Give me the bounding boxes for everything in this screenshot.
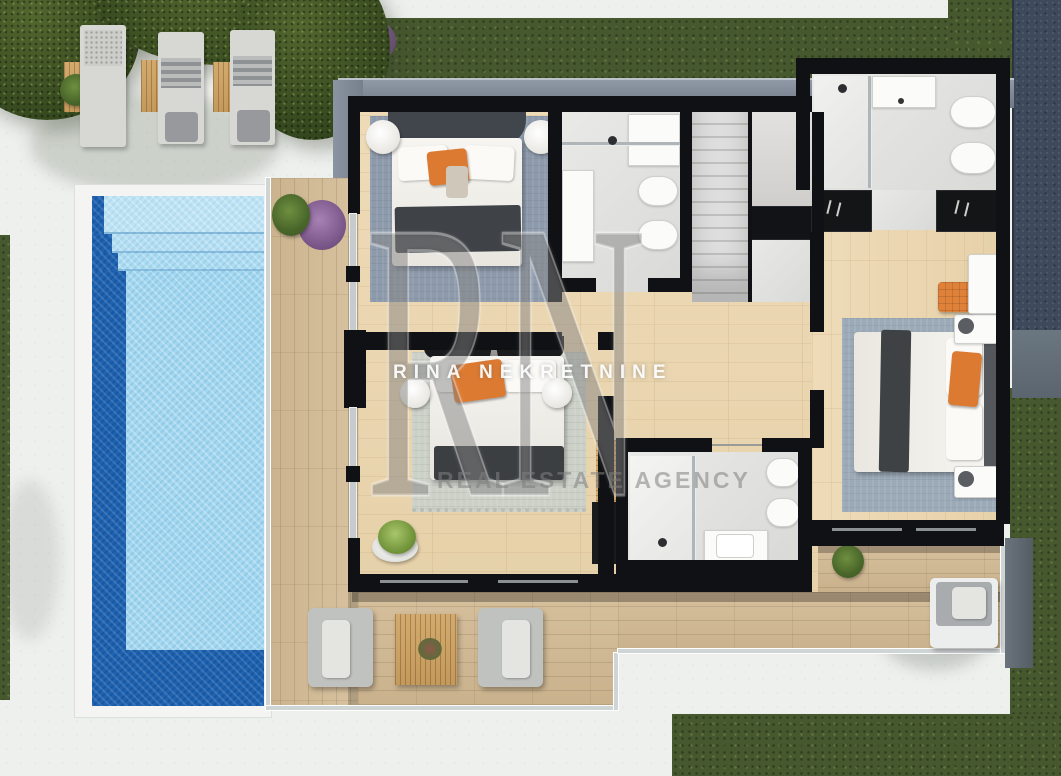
concrete-pad-right xyxy=(1012,330,1061,398)
hall-tile-lower-landing xyxy=(748,240,812,302)
pool-step-shelf xyxy=(104,196,264,234)
bathroom2-vanity xyxy=(872,76,936,108)
shower-glass xyxy=(868,76,871,188)
wall-bath3-top xyxy=(628,438,712,452)
pool-step-shelf xyxy=(112,234,264,253)
glass-railing xyxy=(266,706,618,710)
pool-deep-edge-step xyxy=(92,196,104,234)
glass-door-slit xyxy=(916,528,976,531)
lounger-towel xyxy=(233,56,272,86)
grass-top-right xyxy=(948,0,1018,44)
grass-bottom-right xyxy=(672,714,1061,776)
table-centerpiece xyxy=(418,638,442,660)
deck-plant-pot xyxy=(272,194,310,236)
wall-bottom-right-doors xyxy=(812,520,1004,546)
wall-hall-bedroom3-lower xyxy=(810,390,824,448)
wall-bath1-bottom xyxy=(648,278,680,292)
glass-railing xyxy=(618,649,1005,653)
shower-head xyxy=(838,84,847,93)
vanity-sink xyxy=(716,534,754,558)
lounger-cushion xyxy=(165,112,198,142)
grass-strip-left-edge xyxy=(0,235,10,700)
staircase xyxy=(692,112,748,302)
toilet xyxy=(638,176,678,206)
glass-door-slit xyxy=(832,528,902,531)
wall-bath3-right xyxy=(798,438,812,564)
watermark-agency-tagline: REAL ESTATE AGENCY xyxy=(437,467,751,494)
wall-left-upper xyxy=(348,112,360,214)
wall-top-main xyxy=(348,96,812,112)
lounger-cushion xyxy=(237,110,270,142)
bedroom3-entry-tile xyxy=(870,190,936,230)
bed3-dark-blanket xyxy=(879,330,911,473)
hall-storage-unit xyxy=(750,206,812,240)
nightstand-lamp xyxy=(958,471,974,487)
nightstand-lamp xyxy=(958,318,974,334)
armchair-cushion xyxy=(322,620,350,678)
toilet xyxy=(766,458,800,487)
bidet xyxy=(950,142,996,174)
lounger-head-cushion xyxy=(84,30,122,66)
floorplan-scene: RN RINA NEKRETNINE REAL ESTATE AGENCY xyxy=(0,0,1061,776)
terrace-side-wall xyxy=(1005,538,1033,668)
vanity-faucet xyxy=(898,98,904,104)
bed3-orange-pillow xyxy=(948,351,983,407)
bed3-pillow xyxy=(946,404,982,460)
wall-landing-right xyxy=(812,112,824,232)
side-table xyxy=(213,62,230,112)
pool-step-shelf xyxy=(118,253,264,271)
pool-deep-edge-left xyxy=(92,271,126,654)
house-shadow-on-deck xyxy=(352,592,1005,602)
wall-hall-bedroom3-upper xyxy=(810,232,824,332)
shower-fixture xyxy=(658,538,667,547)
toilet xyxy=(950,96,996,128)
armchair-cushion xyxy=(502,620,530,678)
glass-railing xyxy=(614,653,618,710)
roof-band-right xyxy=(1012,0,1061,335)
lounge-chair-pillow xyxy=(952,587,986,619)
deck-plant-pot xyxy=(832,545,864,578)
pool-deep-edge-step xyxy=(92,234,112,253)
wall-bottom-mid-slab xyxy=(616,560,812,592)
wall-top-bath2 xyxy=(796,58,1008,74)
bidet xyxy=(766,498,800,527)
pool-deep-edge-bottom xyxy=(92,650,264,706)
watermark-agency-name: RINA NEKRETNINE xyxy=(393,362,673,384)
lounger-towel xyxy=(161,58,201,88)
wall-outer-right xyxy=(996,58,1010,524)
door-open-line xyxy=(712,444,762,446)
wall-bath2-left xyxy=(796,58,810,190)
stair-rail xyxy=(748,112,752,302)
bidet xyxy=(638,220,678,250)
wardrobe-right xyxy=(936,190,1000,232)
wall-bath1-stairs xyxy=(680,112,692,292)
glass-railing xyxy=(266,178,270,710)
orange-ottoman xyxy=(938,282,972,312)
pool-deep-edge-step xyxy=(92,253,118,271)
window-post xyxy=(346,466,360,482)
window-post xyxy=(346,266,360,282)
